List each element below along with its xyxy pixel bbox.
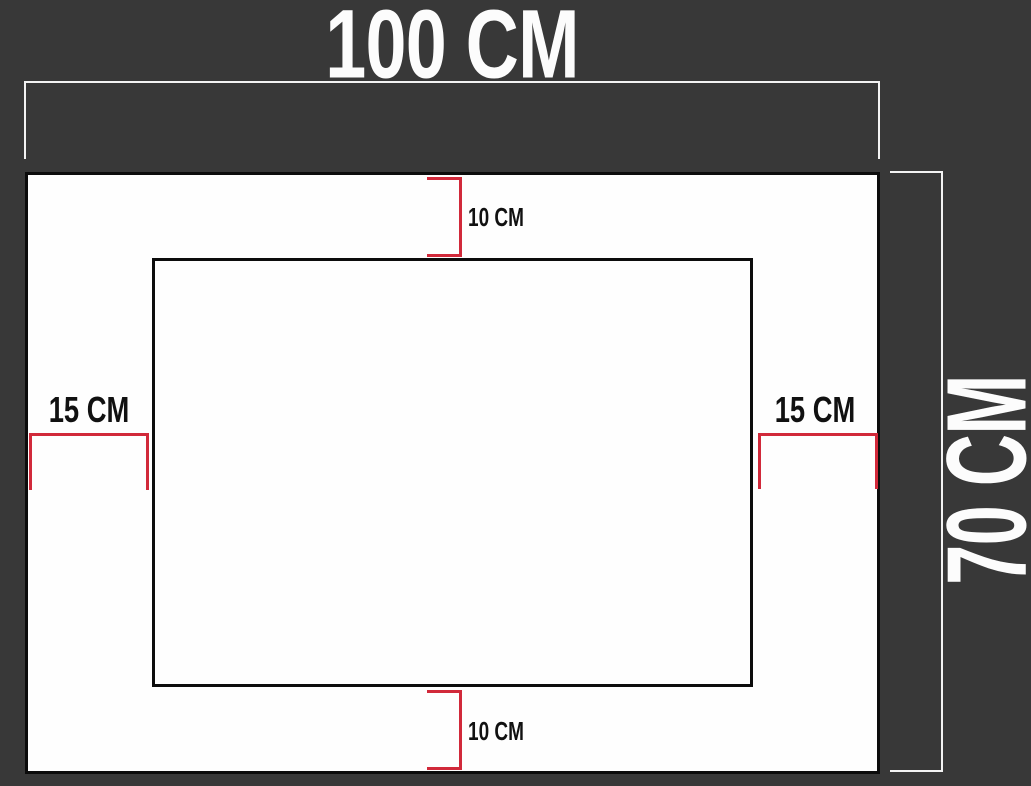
bottom-margin-label: 10 CM	[468, 718, 524, 744]
left-margin-bracket	[29, 433, 149, 490]
inner-rectangle	[152, 258, 753, 687]
width-dimension-bracket	[24, 81, 880, 159]
dimension-diagram: 100 CM 70 CM 10 CM 10 CM 15 CM 15 CM	[0, 0, 1031, 786]
right-margin-label: 15 CM	[775, 392, 856, 428]
height-dimension-label: 70 CM	[931, 375, 1031, 585]
right-margin-bracket	[758, 433, 878, 489]
left-margin-label: 15 CM	[49, 392, 130, 428]
top-margin-label: 10 CM	[468, 204, 524, 230]
top-margin-bracket	[427, 177, 462, 257]
bottom-margin-bracket	[427, 690, 462, 770]
width-dimension-label: 100 CM	[325, 0, 579, 93]
